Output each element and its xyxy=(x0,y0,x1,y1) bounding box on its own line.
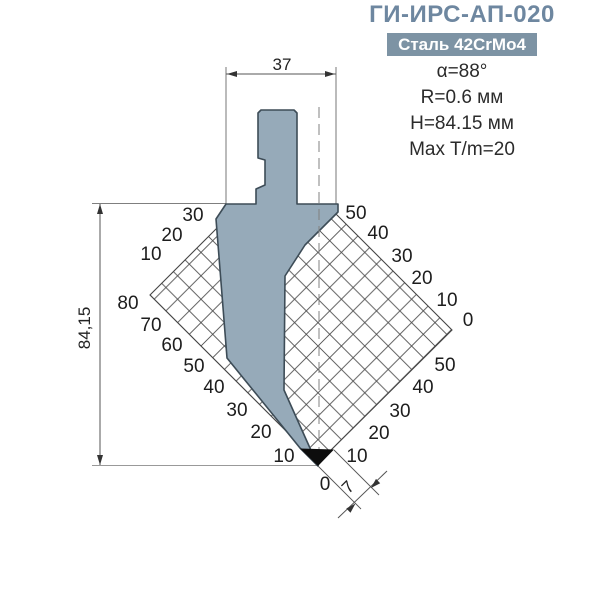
dimension-top-width-value: 37 xyxy=(273,55,292,74)
steel-grade-badge: Сталь 42CrMo4 xyxy=(387,33,537,56)
grid-label: 30 xyxy=(226,400,247,421)
grid-label: 50 xyxy=(434,355,455,376)
spec-radius: R=0.6 мм xyxy=(409,85,515,111)
grid-label: 20 xyxy=(411,268,432,289)
grid-label: 10 xyxy=(436,290,457,311)
grid-label: 30 xyxy=(182,205,203,226)
punch-tip xyxy=(300,449,334,467)
grid-label: 20 xyxy=(368,423,389,444)
grid-label: 0 xyxy=(463,310,474,331)
dimension-left-height-value: 84,15 xyxy=(75,307,94,350)
grid-label: 50 xyxy=(345,203,366,224)
grid-label: 70 xyxy=(140,315,161,336)
grid-label: 20 xyxy=(250,422,271,443)
grid-label: 20 xyxy=(161,225,182,246)
dimension-tip-offset-value: 7 xyxy=(338,477,358,497)
grid-label: 30 xyxy=(389,401,410,422)
grid-label-zero: 0 xyxy=(320,474,331,495)
grid-label: 40 xyxy=(367,223,388,244)
drawing-page: 37 84,15 7 30 2 xyxy=(0,0,600,600)
grid-label: 40 xyxy=(412,377,433,398)
spec-tonnage: Max T/m=20 xyxy=(409,137,515,163)
grid-label: 10 xyxy=(346,446,367,467)
grid-label: 80 xyxy=(117,293,138,314)
spec-angle: α=88° xyxy=(409,59,515,85)
spec-height: H=84.15 мм xyxy=(409,111,515,137)
header-block: ГИ-ИРС-АП-020 Сталь 42CrMo4 α=88° R=0.6 … xyxy=(342,0,582,163)
grid-label: 10 xyxy=(273,446,294,467)
grid-label: 30 xyxy=(391,246,412,267)
product-code: ГИ-ИРС-АП-020 xyxy=(369,0,555,30)
grid-label: 50 xyxy=(183,356,204,377)
grid-label: 10 xyxy=(140,244,161,265)
grid-label: 40 xyxy=(203,377,224,398)
spec-list: α=88° R=0.6 мм H=84.15 мм Max T/m=20 xyxy=(409,59,515,163)
grid-label: 60 xyxy=(161,335,182,356)
